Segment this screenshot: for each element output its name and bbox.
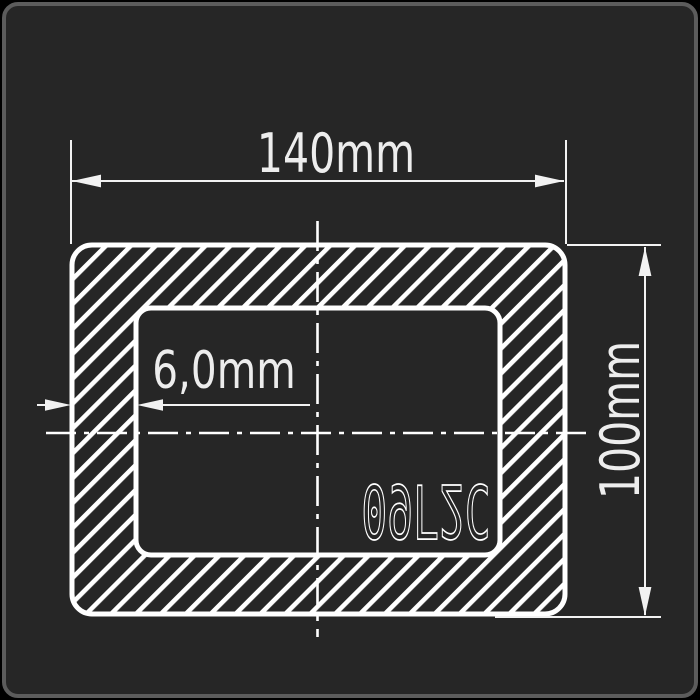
drawing-canvas: 09Г2С 140mm 6,0mm 100mm <box>0 0 700 700</box>
width-arrow-left-icon <box>72 175 101 188</box>
width-dimension-label: 140mm <box>257 127 415 181</box>
height-arrow-bottom-icon <box>639 587 652 616</box>
height-arrow-top-icon <box>639 247 652 276</box>
steel-grade-label: 09Г2С <box>361 467 490 553</box>
wall-arrow-outside-icon <box>45 399 71 411</box>
wall-thickness-label: 6,0mm <box>152 345 296 397</box>
height-dimension-label: 100mm <box>594 341 648 499</box>
width-arrow-right-icon <box>535 175 564 188</box>
